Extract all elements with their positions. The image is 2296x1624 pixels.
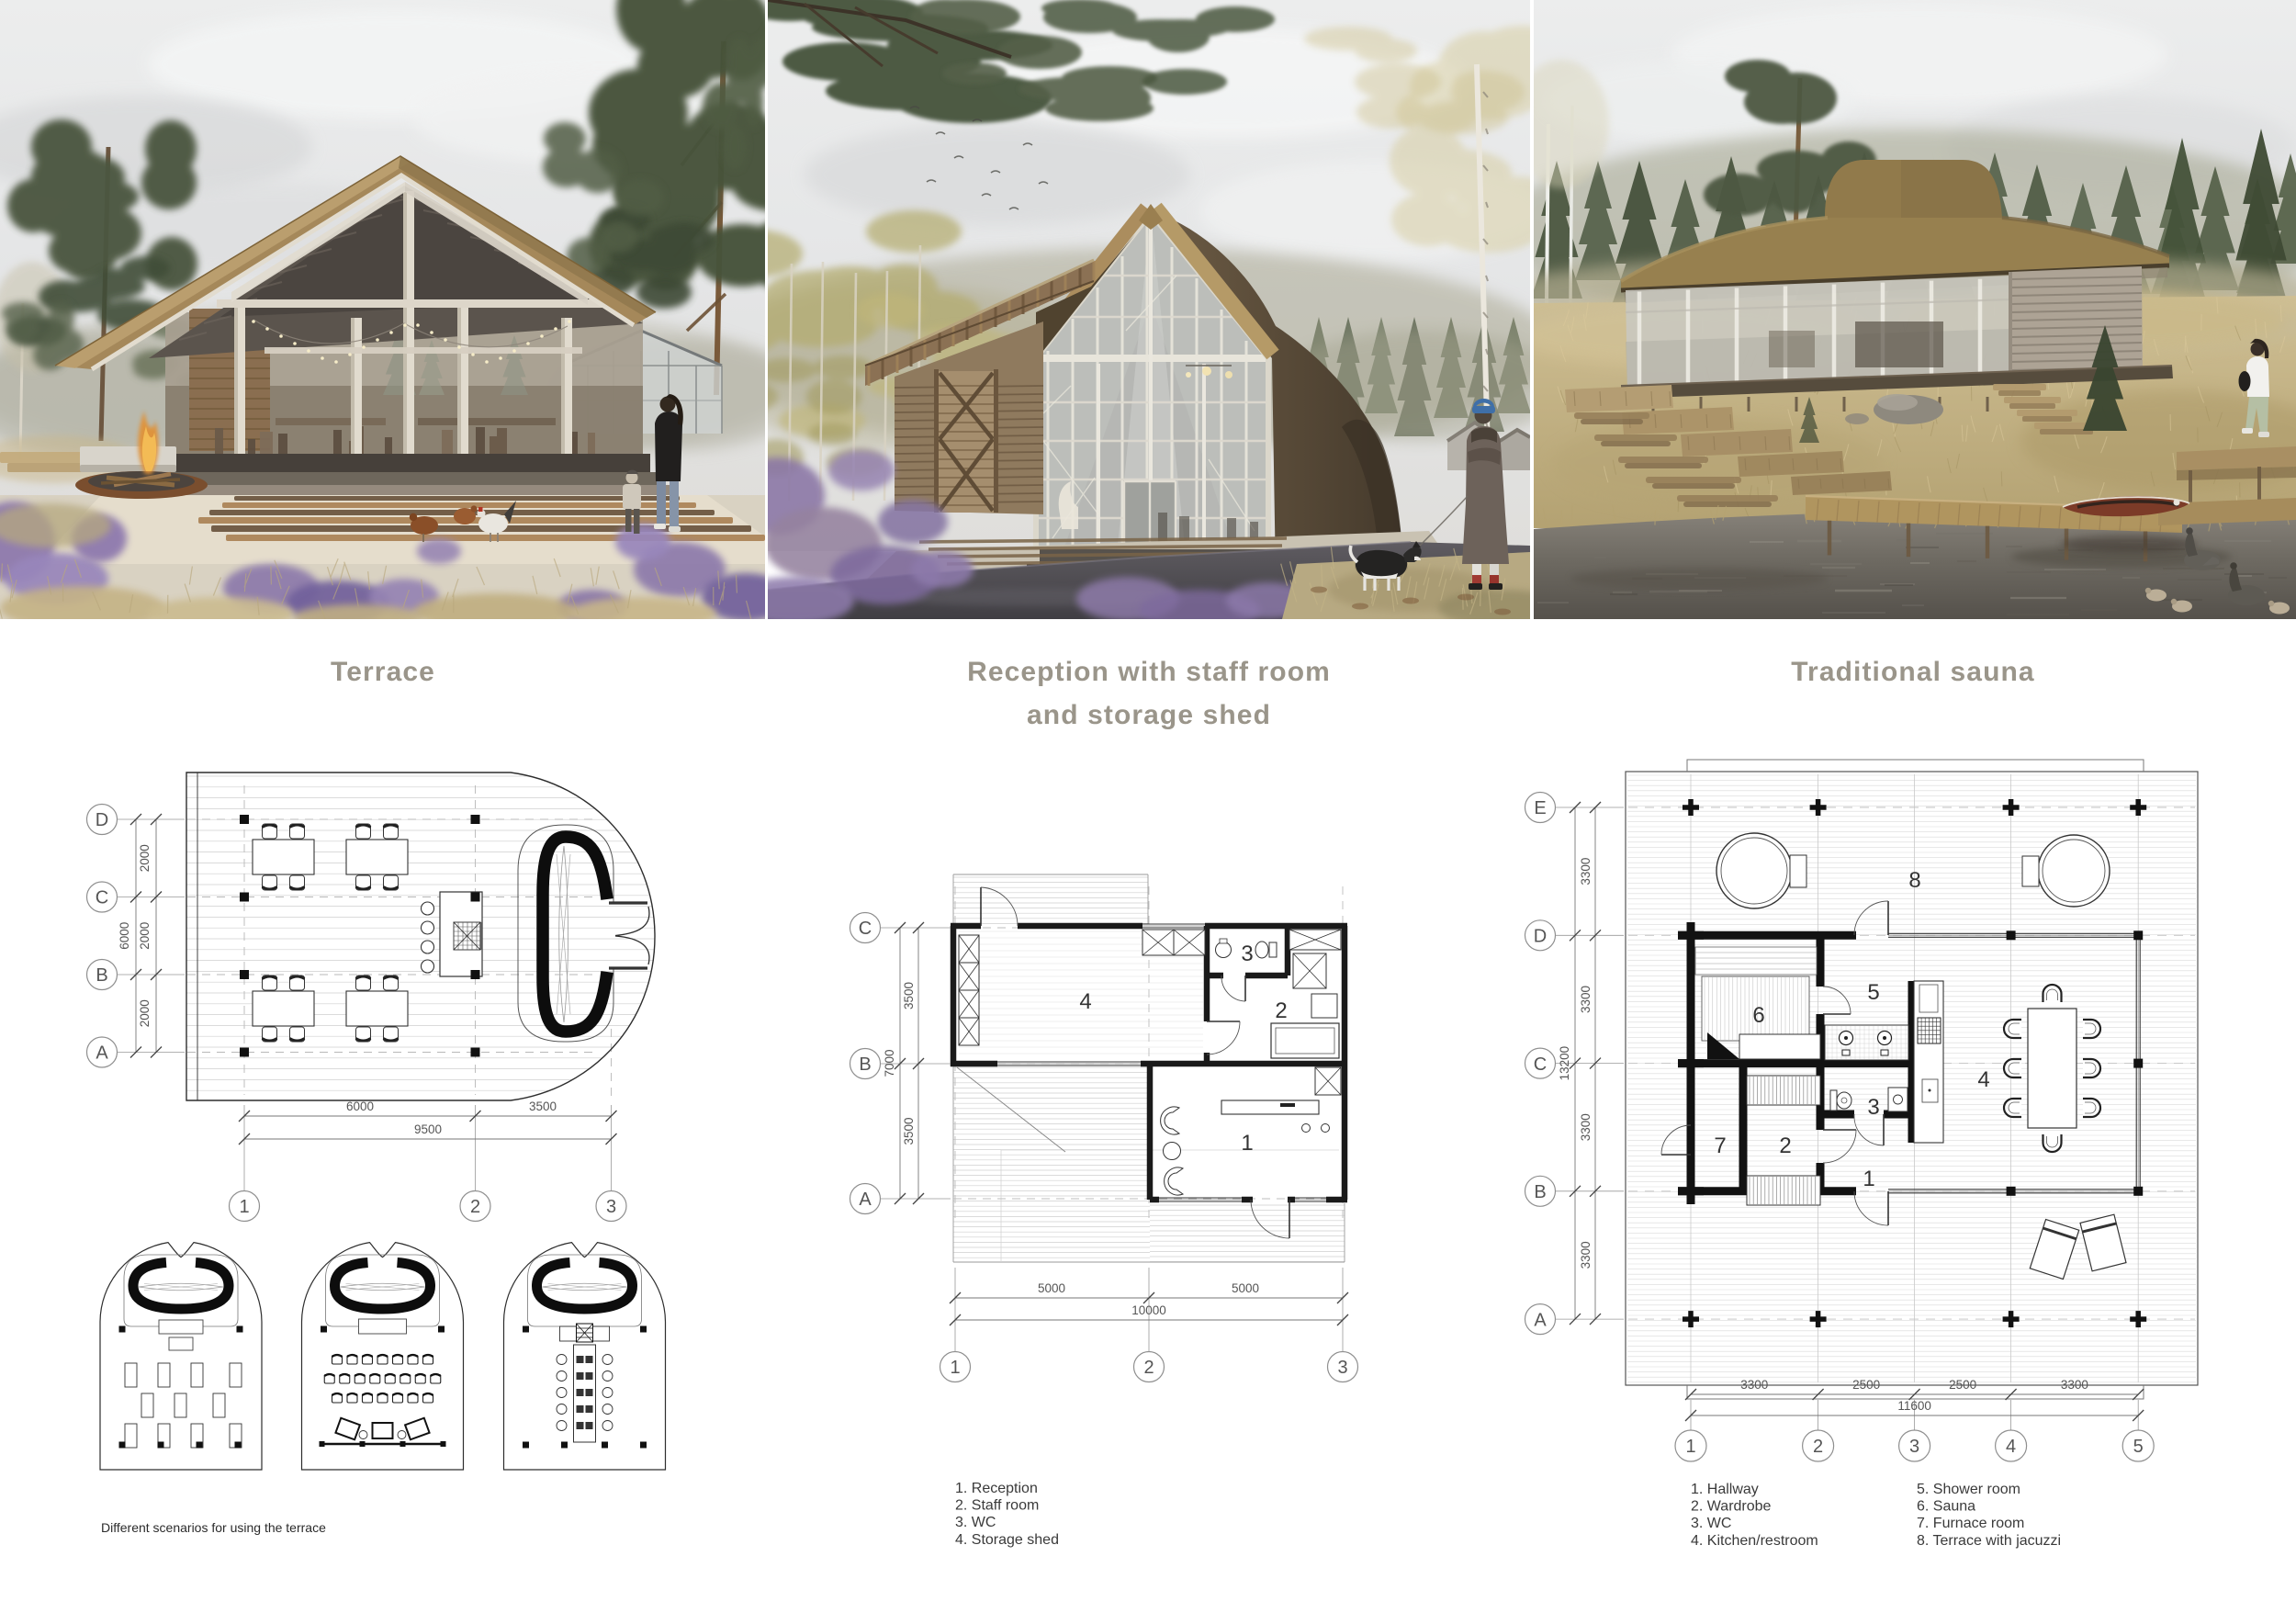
- svg-text:2. Staff room: 2. Staff room: [955, 1498, 1039, 1514]
- svg-text:3: 3: [1867, 1095, 1879, 1120]
- svg-text:2000: 2000: [138, 922, 152, 950]
- svg-text:4. Storage shed: 4. Storage shed: [955, 1532, 1059, 1548]
- svg-text:5000: 5000: [1232, 1281, 1259, 1295]
- svg-text:3300: 3300: [1579, 858, 1593, 885]
- svg-text:3: 3: [1337, 1358, 1347, 1378]
- svg-text:6000: 6000: [346, 1100, 374, 1113]
- svg-text:3300: 3300: [1740, 1378, 1768, 1392]
- svg-text:3500: 3500: [529, 1100, 557, 1113]
- svg-text:9500: 9500: [414, 1122, 442, 1136]
- svg-text:3300: 3300: [1579, 1241, 1593, 1269]
- svg-text:2: 2: [470, 1197, 480, 1217]
- svg-text:2: 2: [1779, 1133, 1791, 1158]
- svg-text:2500: 2500: [1949, 1378, 1976, 1392]
- svg-text:4: 4: [2006, 1437, 2016, 1457]
- svg-text:2. Wardrobe: 2. Wardrobe: [1691, 1499, 1772, 1515]
- svg-text:C: C: [859, 919, 872, 939]
- svg-text:C: C: [1534, 1054, 1547, 1075]
- svg-text:2000: 2000: [138, 844, 152, 872]
- svg-text:C: C: [96, 888, 108, 908]
- svg-text:B: B: [859, 1054, 871, 1075]
- svg-text:3. WC: 3. WC: [1691, 1516, 1731, 1531]
- svg-text:4: 4: [1079, 989, 1091, 1014]
- svg-text:1: 1: [1685, 1437, 1695, 1457]
- svg-text:2: 2: [1275, 998, 1287, 1023]
- svg-text:6. Sauna: 6. Sauna: [1917, 1499, 1975, 1515]
- svg-text:1: 1: [1241, 1131, 1253, 1156]
- svg-text:11600: 11600: [1897, 1399, 1931, 1413]
- svg-text:7. Furnace room: 7. Furnace room: [1917, 1516, 2024, 1531]
- svg-text:2000: 2000: [138, 999, 152, 1027]
- svg-text:3: 3: [606, 1197, 616, 1217]
- svg-text:B: B: [96, 965, 107, 986]
- svg-text:1. Reception: 1. Reception: [955, 1481, 1038, 1496]
- svg-text:3300: 3300: [1579, 1113, 1593, 1141]
- svg-text:7000: 7000: [883, 1049, 896, 1077]
- svg-text:4: 4: [1977, 1067, 1989, 1092]
- svg-text:1: 1: [950, 1358, 960, 1378]
- svg-text:1: 1: [239, 1197, 249, 1217]
- svg-text:A: A: [1534, 1310, 1547, 1330]
- svg-text:A: A: [96, 1043, 108, 1064]
- svg-text:5: 5: [1867, 980, 1879, 1005]
- svg-text:D: D: [1534, 927, 1547, 947]
- svg-text:13200: 13200: [1558, 1046, 1571, 1081]
- svg-text:3500: 3500: [902, 982, 916, 1009]
- svg-text:5000: 5000: [1038, 1281, 1065, 1295]
- svg-text:3300: 3300: [1579, 986, 1593, 1013]
- svg-text:3500: 3500: [902, 1117, 916, 1145]
- svg-text:7: 7: [1714, 1133, 1726, 1158]
- svg-text:10000: 10000: [1131, 1303, 1166, 1317]
- svg-text:E: E: [1534, 798, 1546, 818]
- svg-text:6000: 6000: [118, 922, 131, 950]
- svg-text:8. Terrace with jacuzzi: 8. Terrace with jacuzzi: [1917, 1533, 2061, 1549]
- svg-text:3300: 3300: [2061, 1378, 2088, 1392]
- svg-text:2: 2: [1813, 1437, 1823, 1457]
- svg-text:1. Hallway: 1. Hallway: [1691, 1482, 1759, 1497]
- svg-text:1: 1: [1863, 1167, 1874, 1191]
- svg-text:Different scenarios for using: Different scenarios for using the terrac…: [101, 1520, 326, 1535]
- svg-text:6: 6: [1752, 1003, 1764, 1028]
- svg-text:B: B: [1534, 1182, 1546, 1202]
- svg-text:5: 5: [2133, 1437, 2144, 1457]
- svg-text:A: A: [859, 1190, 872, 1210]
- svg-text:2: 2: [1143, 1358, 1154, 1378]
- svg-text:3. WC: 3. WC: [955, 1515, 996, 1530]
- svg-text:5. Shower room: 5. Shower room: [1917, 1482, 2020, 1497]
- svg-text:3: 3: [1241, 942, 1253, 966]
- svg-text:D: D: [96, 810, 108, 830]
- svg-text:3: 3: [1909, 1437, 1919, 1457]
- svg-text:8: 8: [1908, 868, 1920, 893]
- svg-text:2500: 2500: [1852, 1378, 1880, 1392]
- svg-text:4. Kitchen/restroom: 4. Kitchen/restroom: [1691, 1533, 1818, 1549]
